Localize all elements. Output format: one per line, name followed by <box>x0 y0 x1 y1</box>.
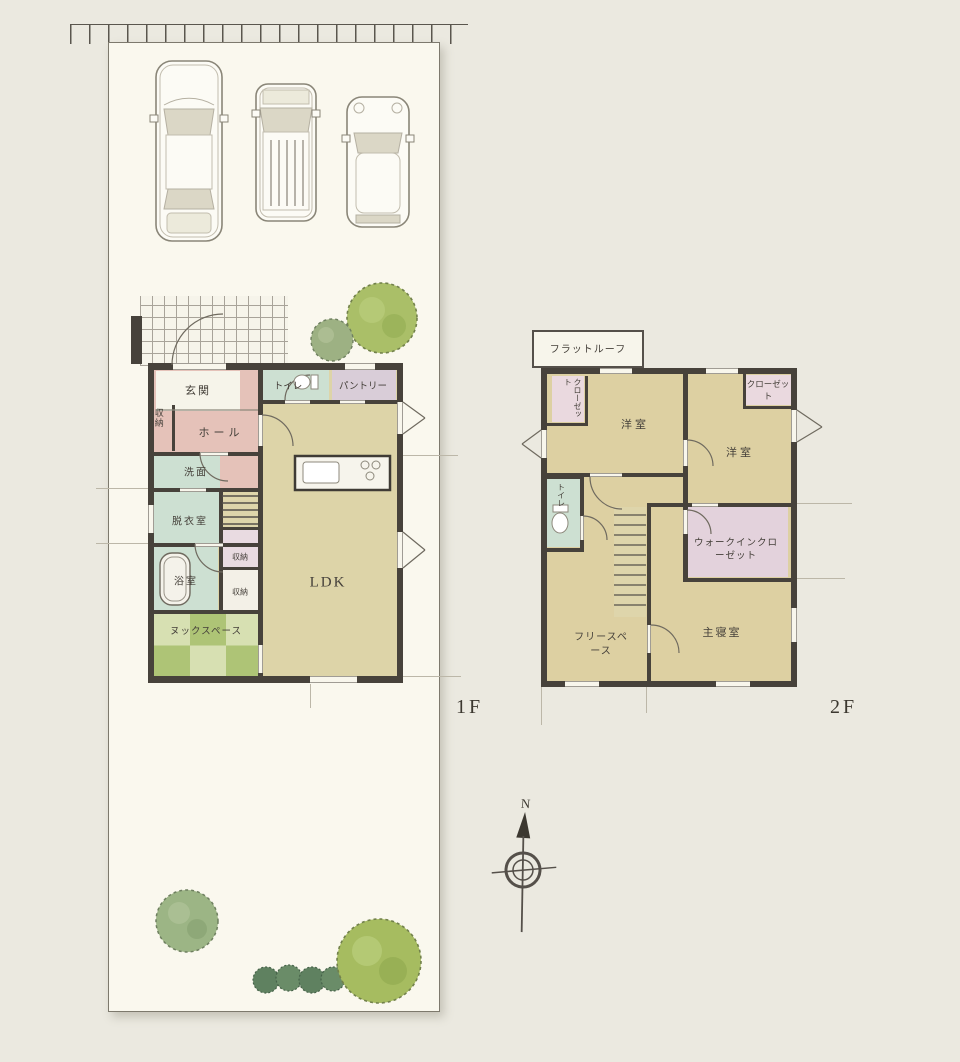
floor2-label: 2F <box>830 696 857 719</box>
label-storage-a: 収納 <box>232 552 248 563</box>
label-bedroom-left: 洋室 <box>621 416 649 432</box>
kitchen-counter-icon <box>295 456 390 490</box>
label-dressing: 脱衣室 <box>172 513 208 528</box>
label-bedroom-right: 洋室 <box>726 444 754 460</box>
tree-icon-bottom-left <box>152 886 222 956</box>
toilet-fixture-icon-2f <box>552 505 568 533</box>
label-walk-in-closet: ウォークインクローゼット <box>690 538 782 565</box>
label-washroom: 洗面 <box>184 464 208 479</box>
label-closet-right: クローゼット <box>746 379 790 403</box>
label-closet-left: クローゼット <box>556 378 582 422</box>
guide-line <box>646 687 647 713</box>
label-genkan: 玄関 <box>185 382 211 398</box>
label-flat-roof: フラットルーフ <box>550 341 626 356</box>
label-storage-b: 収納 <box>232 587 248 598</box>
car-van-icon <box>252 80 320 225</box>
bush-row-icon <box>252 958 344 1002</box>
tree-icon-bottom-right <box>333 915 425 1007</box>
guide-line <box>96 543 148 544</box>
compass-icon: N <box>488 792 568 942</box>
label-master-bedroom: 主寝室 <box>703 624 742 640</box>
guide-line <box>96 488 148 489</box>
floor2-walls-and-fixtures <box>520 320 830 700</box>
guide-line <box>797 578 845 579</box>
compass-north-label: N <box>520 796 531 812</box>
label-storage-wall: 収納 <box>153 408 164 428</box>
guide-line <box>797 503 852 504</box>
label-pantry: パントリー <box>339 378 387 392</box>
guide-line <box>403 676 461 677</box>
label-nook-space: ヌックスペース <box>170 623 242 637</box>
floor1-label: 1F <box>456 696 483 719</box>
guide-line <box>310 684 311 708</box>
boundary-fence-line <box>70 24 468 44</box>
car-sedan-icon <box>150 57 228 245</box>
label-ldk: LDK <box>310 575 347 592</box>
label-bathroom: 浴室 <box>174 573 198 588</box>
floor-plan-page: 玄関 トイレ パントリー 収納 ホール 洗面 脱衣室 浴室 収納 収納 ヌックス… <box>0 0 960 1062</box>
guide-line <box>541 687 542 725</box>
floor1-walls-and-fixtures <box>120 293 410 685</box>
label-toilet-1f: トイレ <box>274 378 303 392</box>
label-hall: ホール <box>199 424 244 440</box>
label-toilet-2f: トイレ <box>556 483 566 507</box>
label-free-space: フリースペース <box>569 631 633 659</box>
guide-line <box>403 455 458 456</box>
car-suv-icon <box>342 87 414 232</box>
